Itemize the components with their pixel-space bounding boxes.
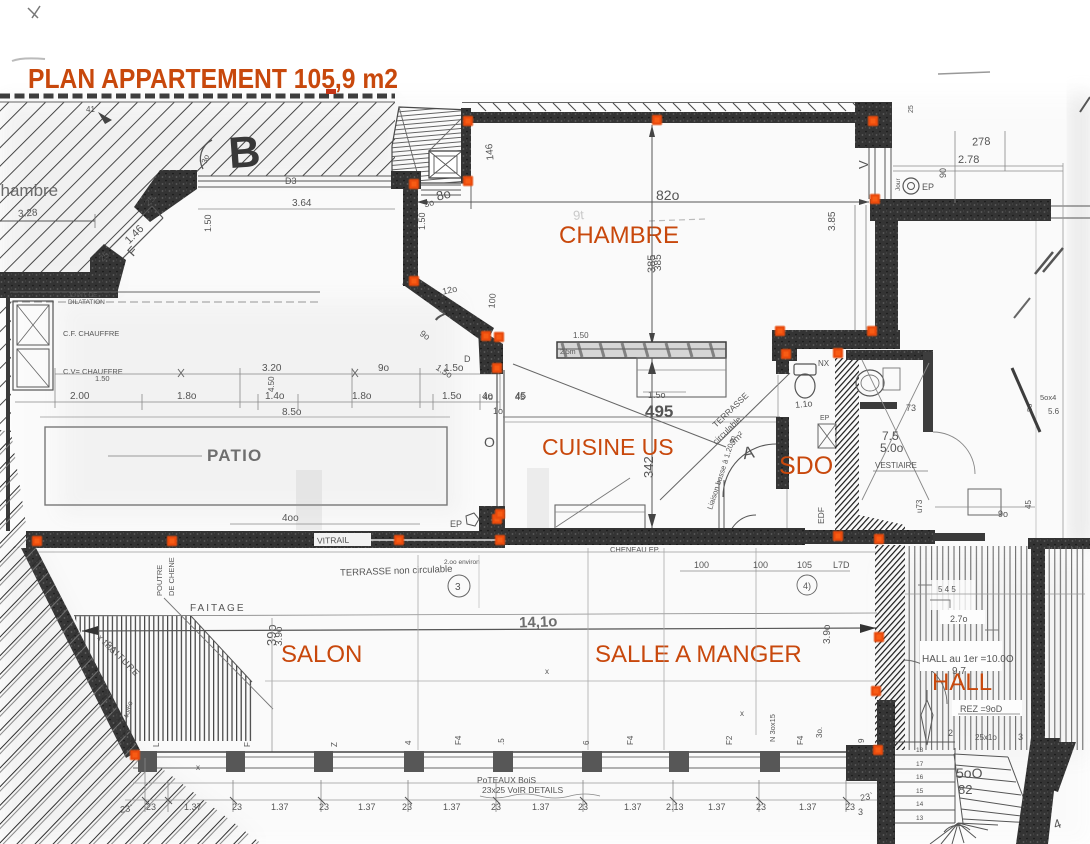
svg-text:495: 495 bbox=[645, 402, 673, 421]
svg-text:1.37: 1.37 bbox=[358, 802, 376, 812]
svg-text:D3: D3 bbox=[285, 176, 297, 186]
svg-text:EP: EP bbox=[450, 519, 462, 529]
svg-text:2.78: 2.78 bbox=[958, 154, 979, 166]
svg-text:1.5o: 1.5o bbox=[442, 391, 462, 402]
svg-text:23`: 23` bbox=[120, 803, 134, 815]
svg-text:V: V bbox=[856, 160, 871, 169]
svg-text:8.5o: 8.5o bbox=[282, 407, 302, 418]
svg-text:DE CHENE: DE CHENE bbox=[167, 557, 176, 596]
svg-text:18: 18 bbox=[916, 747, 924, 754]
svg-text:105: 105 bbox=[797, 560, 812, 570]
svg-text:x: x bbox=[740, 709, 744, 718]
svg-text:2.5m: 2.5m bbox=[560, 349, 576, 356]
svg-text:SALLE A MANGER: SALLE A MANGER bbox=[595, 641, 802, 668]
svg-text:DILATATION: DILATATION bbox=[68, 299, 105, 306]
svg-text:3: 3 bbox=[1018, 732, 1023, 742]
svg-text:L7D: L7D bbox=[833, 560, 850, 570]
svg-text:278: 278 bbox=[972, 136, 991, 149]
svg-text:NX: NX bbox=[818, 359, 830, 368]
svg-text:F2: F2 bbox=[725, 735, 734, 745]
svg-text:PATIO: PATIO bbox=[207, 446, 262, 465]
svg-text:REZ =9oD: REZ =9oD bbox=[960, 704, 1003, 714]
svg-text:EDF: EDF bbox=[816, 507, 826, 524]
svg-text:1.37: 1.37 bbox=[184, 802, 202, 812]
svg-text:3.9o: 3.9o bbox=[822, 624, 833, 644]
svg-text:23: 23 bbox=[146, 802, 156, 812]
svg-text:25x1o: 25x1o bbox=[975, 733, 997, 742]
svg-text:9: 9 bbox=[857, 738, 866, 743]
svg-text:C.F. CHAUFFRE: C.F. CHAUFFRE bbox=[63, 329, 119, 338]
svg-text:82o: 82o bbox=[656, 187, 680, 203]
svg-text:O: O bbox=[484, 434, 495, 450]
svg-text:23: 23 bbox=[845, 802, 855, 812]
svg-text:2: 2 bbox=[948, 728, 953, 738]
svg-text:SALON: SALON bbox=[281, 641, 362, 668]
svg-text:F4: F4 bbox=[626, 735, 635, 745]
svg-text:3.20: 3.20 bbox=[262, 363, 282, 374]
svg-text:23: 23 bbox=[319, 802, 329, 812]
svg-text:3: 3 bbox=[455, 582, 461, 593]
svg-text:23: 23 bbox=[756, 802, 766, 812]
svg-text:1.50: 1.50 bbox=[95, 374, 110, 383]
svg-text:23: 23 bbox=[402, 802, 412, 812]
svg-text:PoTEAUX BoiS: PoTEAUX BoiS bbox=[477, 775, 536, 785]
svg-text:146: 146 bbox=[484, 143, 496, 161]
svg-text:1.8o: 1.8o bbox=[177, 391, 197, 402]
svg-text:5.6: 5.6 bbox=[1048, 407, 1060, 416]
svg-text:HALL au 1er =10.0O: HALL au 1er =10.0O bbox=[922, 654, 1014, 665]
svg-text:5oO: 5oO bbox=[956, 765, 983, 781]
svg-text:3o.: 3o. bbox=[815, 727, 824, 738]
svg-text:45: 45 bbox=[515, 392, 525, 402]
svg-text:FAITAGE: FAITAGE bbox=[190, 603, 246, 614]
svg-text:100: 100 bbox=[487, 293, 498, 309]
svg-text:1.37: 1.37 bbox=[799, 802, 817, 812]
svg-text:EP: EP bbox=[922, 182, 934, 192]
svg-text:1.37: 1.37 bbox=[532, 802, 550, 812]
svg-text:5ox4: 5ox4 bbox=[1040, 393, 1056, 402]
svg-text:CUISINE US: CUISINE US bbox=[542, 434, 674, 460]
svg-text:2.00: 2.00 bbox=[70, 391, 90, 402]
svg-text:1.50: 1.50 bbox=[573, 331, 589, 340]
svg-text:5 4 5: 5 4 5 bbox=[938, 585, 956, 594]
svg-text:1.8o: 1.8o bbox=[352, 391, 372, 402]
svg-text:385: 385 bbox=[653, 254, 664, 271]
svg-text:SDO: SDO bbox=[779, 452, 833, 480]
svg-text:9o: 9o bbox=[378, 363, 390, 374]
svg-text:100: 100 bbox=[694, 560, 709, 570]
svg-text:VESTIAIRE: VESTIAIRE bbox=[875, 461, 917, 470]
svg-text:2.7o: 2.7o bbox=[950, 614, 968, 624]
svg-text:9t: 9t bbox=[572, 207, 584, 223]
svg-text:9o: 9o bbox=[998, 509, 1008, 519]
svg-text:82: 82 bbox=[958, 782, 972, 797]
svg-text:45: 45 bbox=[1024, 500, 1033, 509]
svg-text:1.37: 1.37 bbox=[443, 802, 461, 812]
svg-text:100: 100 bbox=[753, 560, 768, 570]
svg-text:4): 4) bbox=[803, 581, 811, 591]
svg-text:1.50: 1.50 bbox=[417, 212, 427, 230]
svg-text:1o: 1o bbox=[493, 406, 503, 416]
svg-text:15: 15 bbox=[916, 788, 924, 795]
svg-text:F4: F4 bbox=[796, 735, 805, 745]
svg-text:PLAN APPARTEMENT 105,9 m2: PLAN APPARTEMENT 105,9 m2 bbox=[28, 63, 398, 94]
svg-text:13: 13 bbox=[916, 815, 924, 822]
svg-text:90: 90 bbox=[938, 168, 948, 178]
svg-text:3.85: 3.85 bbox=[827, 211, 838, 231]
svg-text:CHENEAU EP.: CHENEAU EP. bbox=[610, 545, 660, 554]
svg-text:3.28: 3.28 bbox=[18, 207, 39, 219]
svg-text:Jour: Jour bbox=[895, 178, 902, 191]
svg-text:HALL: HALL bbox=[932, 669, 992, 696]
svg-text:14,1o: 14,1o bbox=[519, 613, 558, 631]
svg-text:4o: 4o bbox=[483, 392, 493, 402]
svg-text:16: 16 bbox=[916, 774, 924, 781]
svg-text:Z: Z bbox=[330, 742, 339, 747]
svg-text:4.50: 4.50 bbox=[267, 376, 276, 392]
svg-text:1.50: 1.50 bbox=[203, 214, 213, 232]
svg-text:chambre: chambre bbox=[0, 181, 58, 200]
svg-text:1.1o: 1.1o bbox=[795, 398, 813, 410]
svg-text:POUTRE: POUTRE bbox=[155, 565, 164, 596]
svg-text:F4: F4 bbox=[454, 735, 463, 745]
svg-text:D: D bbox=[464, 354, 471, 364]
svg-text:23: 23 bbox=[578, 802, 588, 812]
svg-text:5.0o: 5.0o bbox=[880, 441, 904, 455]
svg-text:.5: .5 bbox=[497, 738, 506, 745]
svg-text:2.13: 2.13 bbox=[666, 802, 684, 812]
svg-text:1.5o: 1.5o bbox=[648, 390, 666, 400]
svg-text:41: 41 bbox=[86, 105, 95, 114]
svg-text:25: 25 bbox=[908, 105, 915, 113]
svg-text:4: 4 bbox=[404, 740, 413, 745]
svg-text:x: x bbox=[545, 667, 549, 676]
svg-text:VITRAIL: VITRAIL bbox=[317, 535, 350, 546]
svg-text:1.37: 1.37 bbox=[708, 802, 726, 812]
svg-text:23x25 VoIR DETAILS: 23x25 VoIR DETAILS bbox=[482, 785, 563, 795]
svg-text:1.37: 1.37 bbox=[271, 802, 289, 812]
svg-text:u73: u73 bbox=[915, 499, 924, 513]
svg-text:L: L bbox=[152, 742, 161, 747]
svg-text:23: 23 bbox=[491, 802, 501, 812]
svg-text:2.oo environ: 2.oo environ bbox=[444, 559, 480, 566]
svg-text:EP: EP bbox=[820, 415, 830, 422]
svg-text:6: 6 bbox=[582, 740, 591, 745]
svg-text:14: 14 bbox=[916, 801, 924, 808]
svg-text:1.37: 1.37 bbox=[624, 802, 642, 812]
svg-text:17: 17 bbox=[916, 761, 924, 768]
svg-text:x: x bbox=[196, 763, 200, 772]
svg-text:F: F bbox=[243, 742, 252, 747]
svg-text:73: 73 bbox=[906, 403, 916, 413]
svg-text:C.V= CHAUFFRE: C.V= CHAUFFRE bbox=[63, 367, 123, 376]
svg-text:B: B bbox=[227, 127, 262, 178]
svg-text:23: 23 bbox=[232, 802, 242, 812]
svg-text:3: 3 bbox=[858, 807, 863, 817]
svg-text:N 3ox15: N 3ox15 bbox=[768, 714, 777, 742]
svg-text:JOINT DE: JOINT DE bbox=[68, 292, 98, 299]
svg-text:CHAMBRE: CHAMBRE bbox=[559, 222, 679, 249]
svg-text:3.64: 3.64 bbox=[292, 198, 312, 209]
